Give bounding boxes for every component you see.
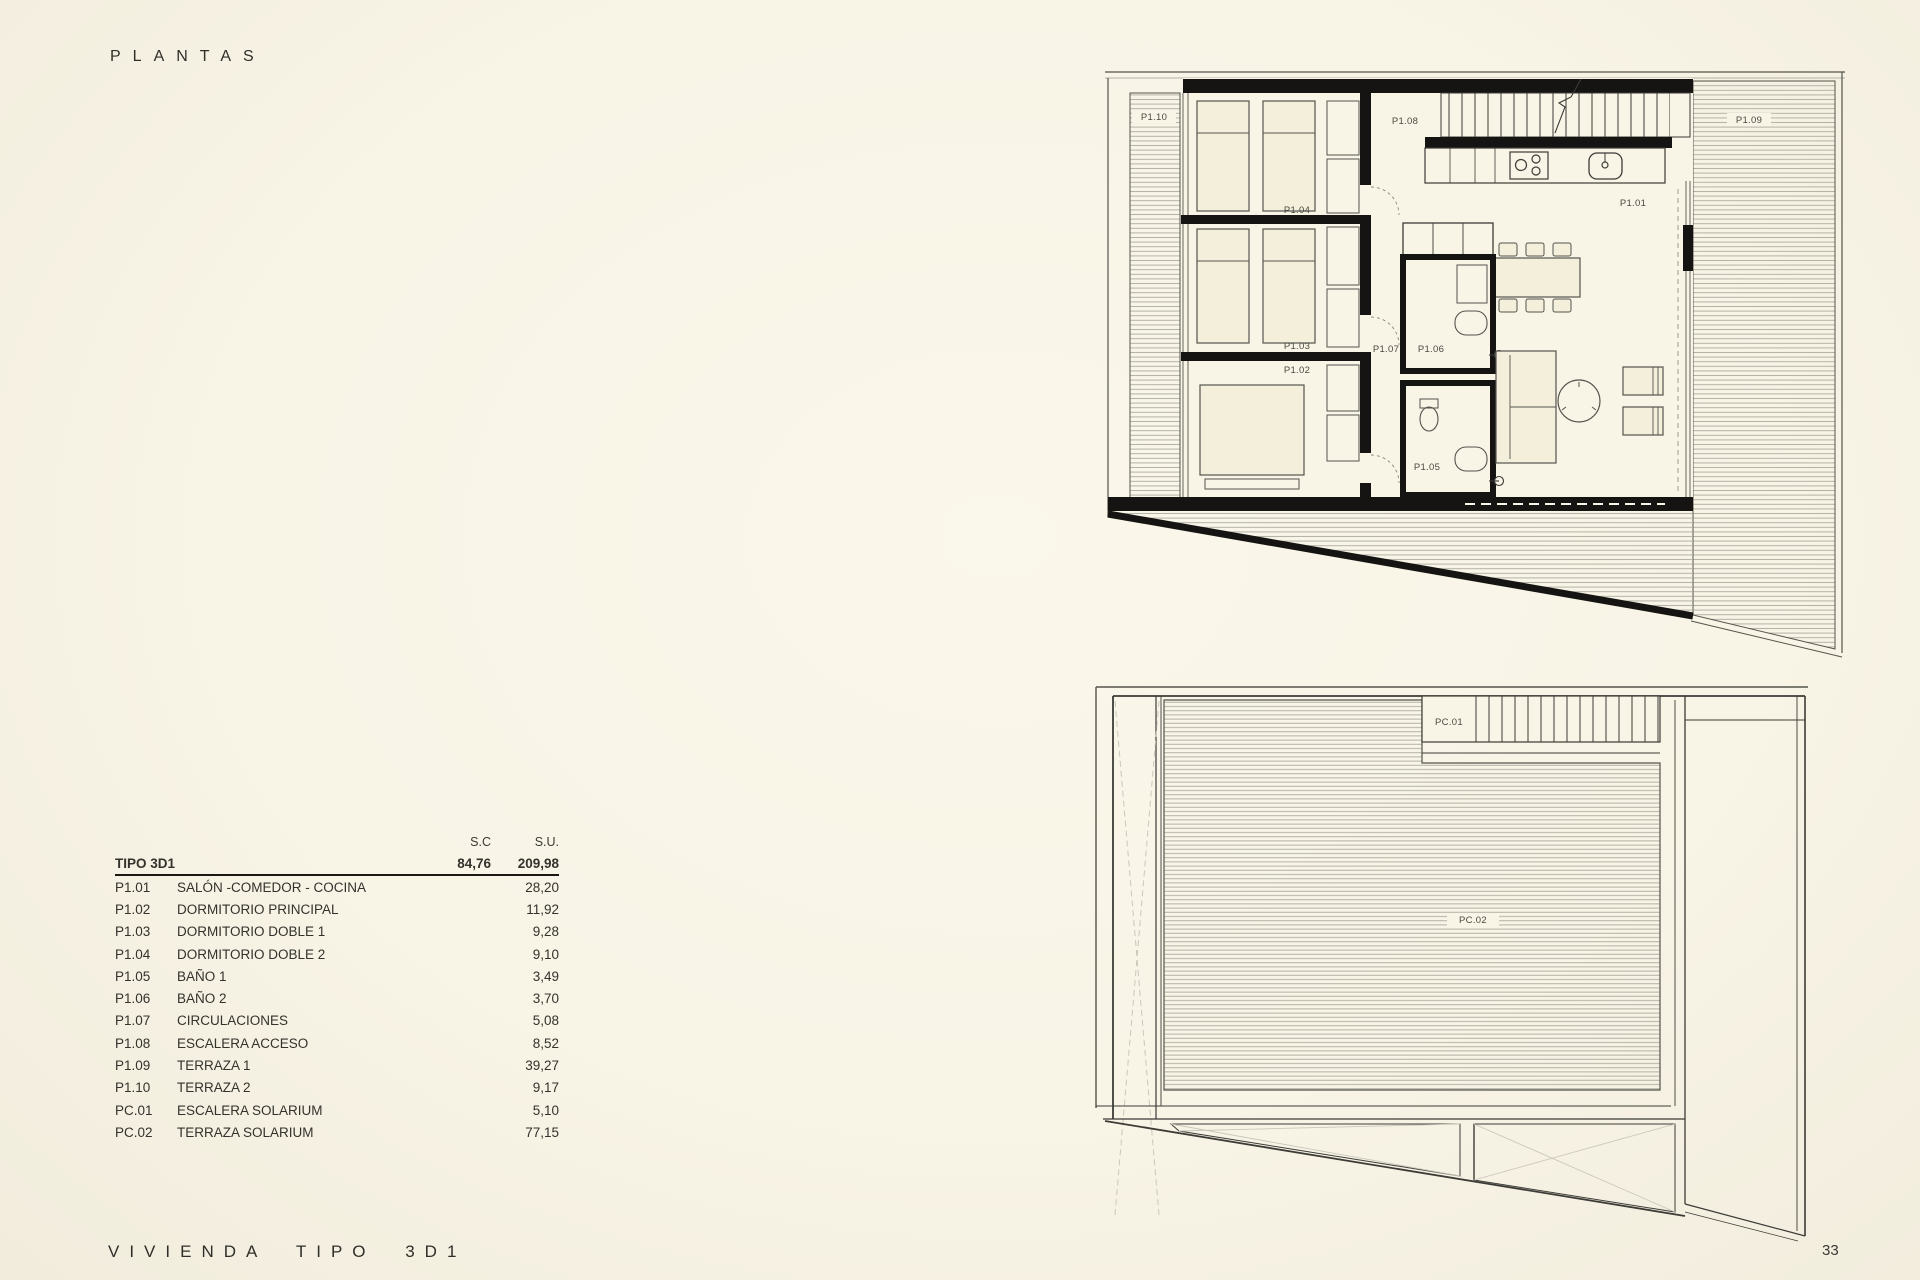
wardrobe-icon — [1327, 159, 1359, 213]
row-su: 3,70 — [491, 991, 559, 1006]
closet-row — [1403, 223, 1493, 257]
braced-strip — [1115, 696, 1161, 1215]
chair-icon — [1553, 299, 1571, 312]
table-row: P1.09TERRAZA 139,27 — [115, 1054, 559, 1076]
row-su: 28,20 — [491, 880, 559, 895]
row-name: DORMITORIO DOBLE 2 — [177, 947, 427, 962]
terrace-2-area: P1.10 — [1130, 93, 1180, 505]
chair-icon — [1526, 243, 1544, 256]
row-name: ESCALERA ACCESO — [177, 1036, 427, 1051]
document-page: PLANTAS S.C S.U. TIPO 3D1 84,76 209,98 P… — [0, 0, 1920, 1280]
stove-icon — [1510, 152, 1548, 179]
row-name: TERRAZA SOLARIUM — [177, 1125, 427, 1140]
dining-table — [1495, 243, 1580, 312]
row-name: CIRCULACIONES — [177, 1013, 427, 1028]
wall-pier — [1683, 225, 1693, 271]
chair-icon — [1526, 299, 1544, 312]
row-name: SALÓN -COMEDOR - COCINA — [177, 880, 427, 895]
diagonal-edge — [1685, 1204, 1805, 1236]
wardrobe-icon — [1327, 227, 1359, 285]
bathroom-2 — [1403, 257, 1493, 371]
terrace-1-area: P1.09 — [1691, 81, 1842, 657]
row-name: TERRAZA 1 — [177, 1058, 427, 1073]
table-row: P1.04DORMITORIO DOBLE 29,10 — [115, 943, 559, 965]
row-su: 5,08 — [491, 1013, 559, 1028]
wardrobe-icon — [1327, 415, 1359, 461]
row-name: DORMITORIO PRINCIPAL — [177, 902, 427, 917]
wardrobe-icon — [1327, 289, 1359, 347]
row-name: ESCALERA SOLARIUM — [177, 1103, 427, 1118]
group-su-value: 209,98 — [491, 856, 559, 871]
row-su: 5,10 — [491, 1103, 559, 1118]
sink-icon — [1589, 153, 1622, 179]
row-code: P1.01 — [115, 880, 177, 895]
chair-icon — [1553, 243, 1571, 256]
room-label-p104: P1.04 — [1284, 205, 1310, 216]
row-code: P1.03 — [115, 924, 177, 939]
table-header-row: S.C S.U. — [115, 832, 559, 852]
wall-bottom — [1108, 497, 1693, 511]
table-row: P1.01SALÓN -COMEDOR - COCINA28,20 — [115, 876, 559, 898]
bedroom-double-1: P1.03 — [1197, 227, 1359, 352]
row-name: BAÑO 2 — [177, 991, 427, 1006]
bed-icon — [1263, 229, 1315, 343]
wall-divider — [1181, 352, 1371, 361]
row-su: 9,17 — [491, 1080, 559, 1095]
row-su: 77,15 — [491, 1125, 559, 1140]
room-label-p101: P1.01 — [1620, 198, 1646, 209]
row-code: P1.09 — [115, 1058, 177, 1073]
group-sc-value: 84,76 — [427, 856, 491, 871]
row-su: 8,52 — [491, 1036, 559, 1051]
column-header-sc: S.C — [427, 835, 491, 849]
diagonal-edge — [1105, 1121, 1685, 1216]
armchair-icon — [1623, 407, 1663, 435]
row-code: P1.08 — [115, 1036, 177, 1051]
room-label-p106: P1.06 — [1418, 344, 1444, 355]
room-label-pc01: PC.01 — [1435, 717, 1463, 728]
stair-treads — [1475, 696, 1660, 742]
bathroom-1 — [1403, 383, 1493, 495]
row-su: 9,28 — [491, 924, 559, 939]
page-number: 33 — [1822, 1242, 1839, 1259]
footer-title: VIVIENDA TIPO 3D1 — [108, 1242, 466, 1262]
page-title: PLANTAS — [110, 48, 266, 66]
bed-icon — [1263, 101, 1315, 211]
group-label: TIPO 3D1 — [115, 856, 427, 871]
room-label-p108: P1.08 — [1392, 116, 1418, 127]
stair-treads — [1448, 93, 1670, 137]
table-row: P1.07CIRCULACIONES5,08 — [115, 1010, 559, 1032]
kitchen-counter — [1425, 148, 1665, 183]
brace-line — [1115, 701, 1159, 1215]
row-code: P1.04 — [115, 947, 177, 962]
row-name: TERRAZA 2 — [177, 1080, 427, 1095]
room-label-p110: P1.10 — [1141, 112, 1167, 123]
row-code: PC.02 — [115, 1125, 177, 1140]
diagonal-edge — [1685, 1212, 1798, 1241]
row-code: P1.02 — [115, 902, 177, 917]
room-label-p102: P1.02 — [1284, 365, 1310, 376]
row-name: BAÑO 1 — [177, 969, 427, 984]
row-su: 3,49 — [491, 969, 559, 984]
row-su: 39,27 — [491, 1058, 559, 1073]
floor-plan-level-1: P1.10 P1.09 P1.08 — [1105, 65, 1845, 660]
row-code: P1.06 — [115, 991, 177, 1006]
table-row: P1.03DORMITORIO DOBLE 19,28 — [115, 921, 559, 943]
row-su: 11,92 — [491, 902, 559, 917]
table-row: P1.10TERRAZA 29,17 — [115, 1077, 559, 1099]
floor-plan-solarium: PC.02 PC.01 — [1093, 675, 1833, 1255]
wall-divider — [1181, 215, 1371, 224]
table-row: P1.05BAÑO 13,49 — [115, 965, 559, 987]
room-label-p107: P1.07 — [1373, 344, 1399, 355]
row-code: P1.10 — [115, 1080, 177, 1095]
room-label-p109: P1.09 — [1736, 115, 1762, 126]
table-row: PC.02TERRAZA SOLARIUM77,15 — [115, 1121, 559, 1143]
room-label-p103: P1.03 — [1284, 341, 1310, 352]
row-code: P1.05 — [115, 969, 177, 984]
chair-icon — [1499, 243, 1517, 256]
room-label-p105: P1.05 — [1414, 462, 1440, 473]
wall-top — [1183, 79, 1693, 93]
bedroom-double-2: P1.04 — [1197, 101, 1359, 216]
column-header-su: S.U. — [491, 835, 559, 849]
table-row: P1.06BAÑO 23,70 — [115, 987, 559, 1009]
brace-line — [1115, 701, 1159, 1215]
row-code: P1.07 — [115, 1013, 177, 1028]
solarium-terrace-area: PC.02 — [1164, 700, 1660, 1090]
right-strip — [1675, 696, 1805, 1241]
row-name: DORMITORIO DOBLE 1 — [177, 924, 427, 939]
row-code: PC.01 — [115, 1103, 177, 1118]
solarium-stairs: PC.01 — [1422, 696, 1660, 753]
bed-icon — [1200, 385, 1304, 475]
chair-icon — [1499, 299, 1517, 312]
table-group-row: TIPO 3D1 84,76 209,98 — [115, 852, 559, 876]
wardrobe-icon — [1327, 101, 1359, 155]
sloped-edge — [1096, 1106, 1685, 1216]
table-row: PC.01ESCALERA SOLARIUM5,10 — [115, 1099, 559, 1121]
bed-icon — [1197, 101, 1249, 211]
armchair-icon — [1623, 367, 1663, 395]
table-row: P1.08ESCALERA ACCESO8,52 — [115, 1032, 559, 1054]
bed-icon — [1197, 229, 1249, 343]
wall-kitchen — [1425, 137, 1672, 148]
area-table: S.C S.U. TIPO 3D1 84,76 209,98 P1.01SALÓ… — [115, 832, 559, 1144]
row-su: 9,10 — [491, 947, 559, 962]
bed-footboard — [1205, 479, 1299, 489]
room-label-pc02: PC.02 — [1459, 915, 1487, 926]
wardrobe-icon — [1327, 365, 1359, 411]
table-row: P1.02DORMITORIO PRINCIPAL11,92 — [115, 898, 559, 920]
